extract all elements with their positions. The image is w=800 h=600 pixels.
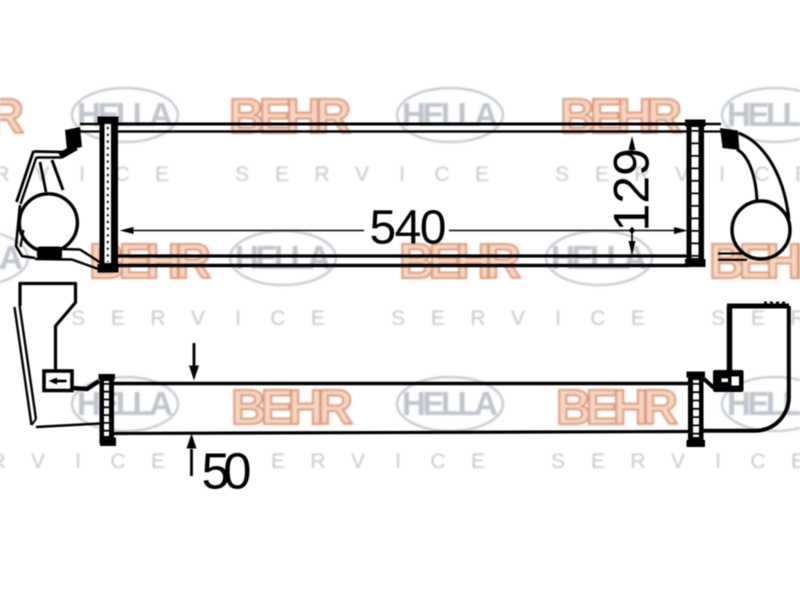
svg-text:C: C [750, 450, 765, 473]
svg-text:E: E [111, 307, 125, 330]
svg-text:I: I [79, 163, 85, 186]
svg-text:R: R [790, 307, 800, 330]
svg-text:540: 540 [370, 202, 447, 255]
svg-text:I: I [235, 307, 241, 330]
svg-text:R: R [314, 163, 329, 186]
svg-text:HELLA: HELLA [77, 96, 173, 133]
svg-text:V: V [191, 307, 205, 330]
svg-text:E: E [151, 450, 165, 473]
svg-text:E: E [795, 163, 800, 186]
svg-text:E: E [631, 307, 645, 330]
svg-text:R: R [470, 307, 485, 330]
svg-text:129: 129 [604, 148, 660, 231]
svg-text:C: C [270, 307, 285, 330]
svg-text:C: C [434, 163, 449, 186]
svg-text:S: S [71, 307, 85, 330]
svg-text:E: E [275, 163, 289, 186]
svg-text:V: V [355, 163, 369, 186]
svg-text:R: R [150, 307, 165, 330]
svg-text:HELLA: HELLA [77, 385, 173, 422]
svg-text:BEHR: BEHR [231, 381, 353, 435]
svg-text:E: E [431, 307, 445, 330]
svg-text:S: S [551, 450, 565, 473]
svg-text:BEHR: BEHR [556, 381, 678, 435]
svg-text:C: C [590, 307, 605, 330]
svg-text:E: E [271, 450, 285, 473]
svg-text:BEHR: BEHR [0, 90, 24, 144]
svg-text:E: E [155, 163, 169, 186]
svg-text:V: V [351, 450, 365, 473]
svg-text:S: S [555, 163, 569, 186]
svg-text:S: S [391, 307, 405, 330]
svg-text:R: R [0, 163, 10, 186]
svg-text:I: I [395, 450, 401, 473]
svg-text:HELLA: HELLA [0, 239, 23, 276]
svg-text:HELLA: HELLA [402, 385, 498, 422]
svg-text:50: 50 [202, 443, 252, 500]
svg-text:I: I [719, 163, 725, 186]
svg-text:E: E [591, 450, 605, 473]
svg-text:E: E [311, 307, 325, 330]
svg-text:S: S [235, 163, 249, 186]
svg-text:HELLA: HELLA [727, 96, 800, 133]
svg-text:I: I [75, 450, 81, 473]
svg-text:V: V [671, 450, 685, 473]
svg-text:I: I [555, 307, 561, 330]
svg-text:E: E [791, 450, 800, 473]
svg-text:C: C [754, 163, 769, 186]
svg-text:E: E [475, 163, 489, 186]
svg-text:I: I [399, 163, 405, 186]
svg-text:V: V [31, 450, 45, 473]
svg-text:C: C [430, 450, 445, 473]
svg-text:E: E [471, 450, 485, 473]
svg-text:R: R [630, 450, 645, 473]
svg-text:S: S [711, 307, 725, 330]
svg-text:R: R [310, 450, 325, 473]
svg-text:BEHR: BEHR [560, 90, 682, 144]
svg-text:C: C [110, 450, 125, 473]
svg-text:BEHR: BEHR [229, 90, 351, 144]
svg-text:R: R [0, 450, 6, 473]
svg-text:E: E [751, 307, 765, 330]
svg-text:V: V [511, 307, 525, 330]
svg-text:HELLA: HELLA [402, 96, 498, 133]
svg-text:I: I [715, 450, 721, 473]
